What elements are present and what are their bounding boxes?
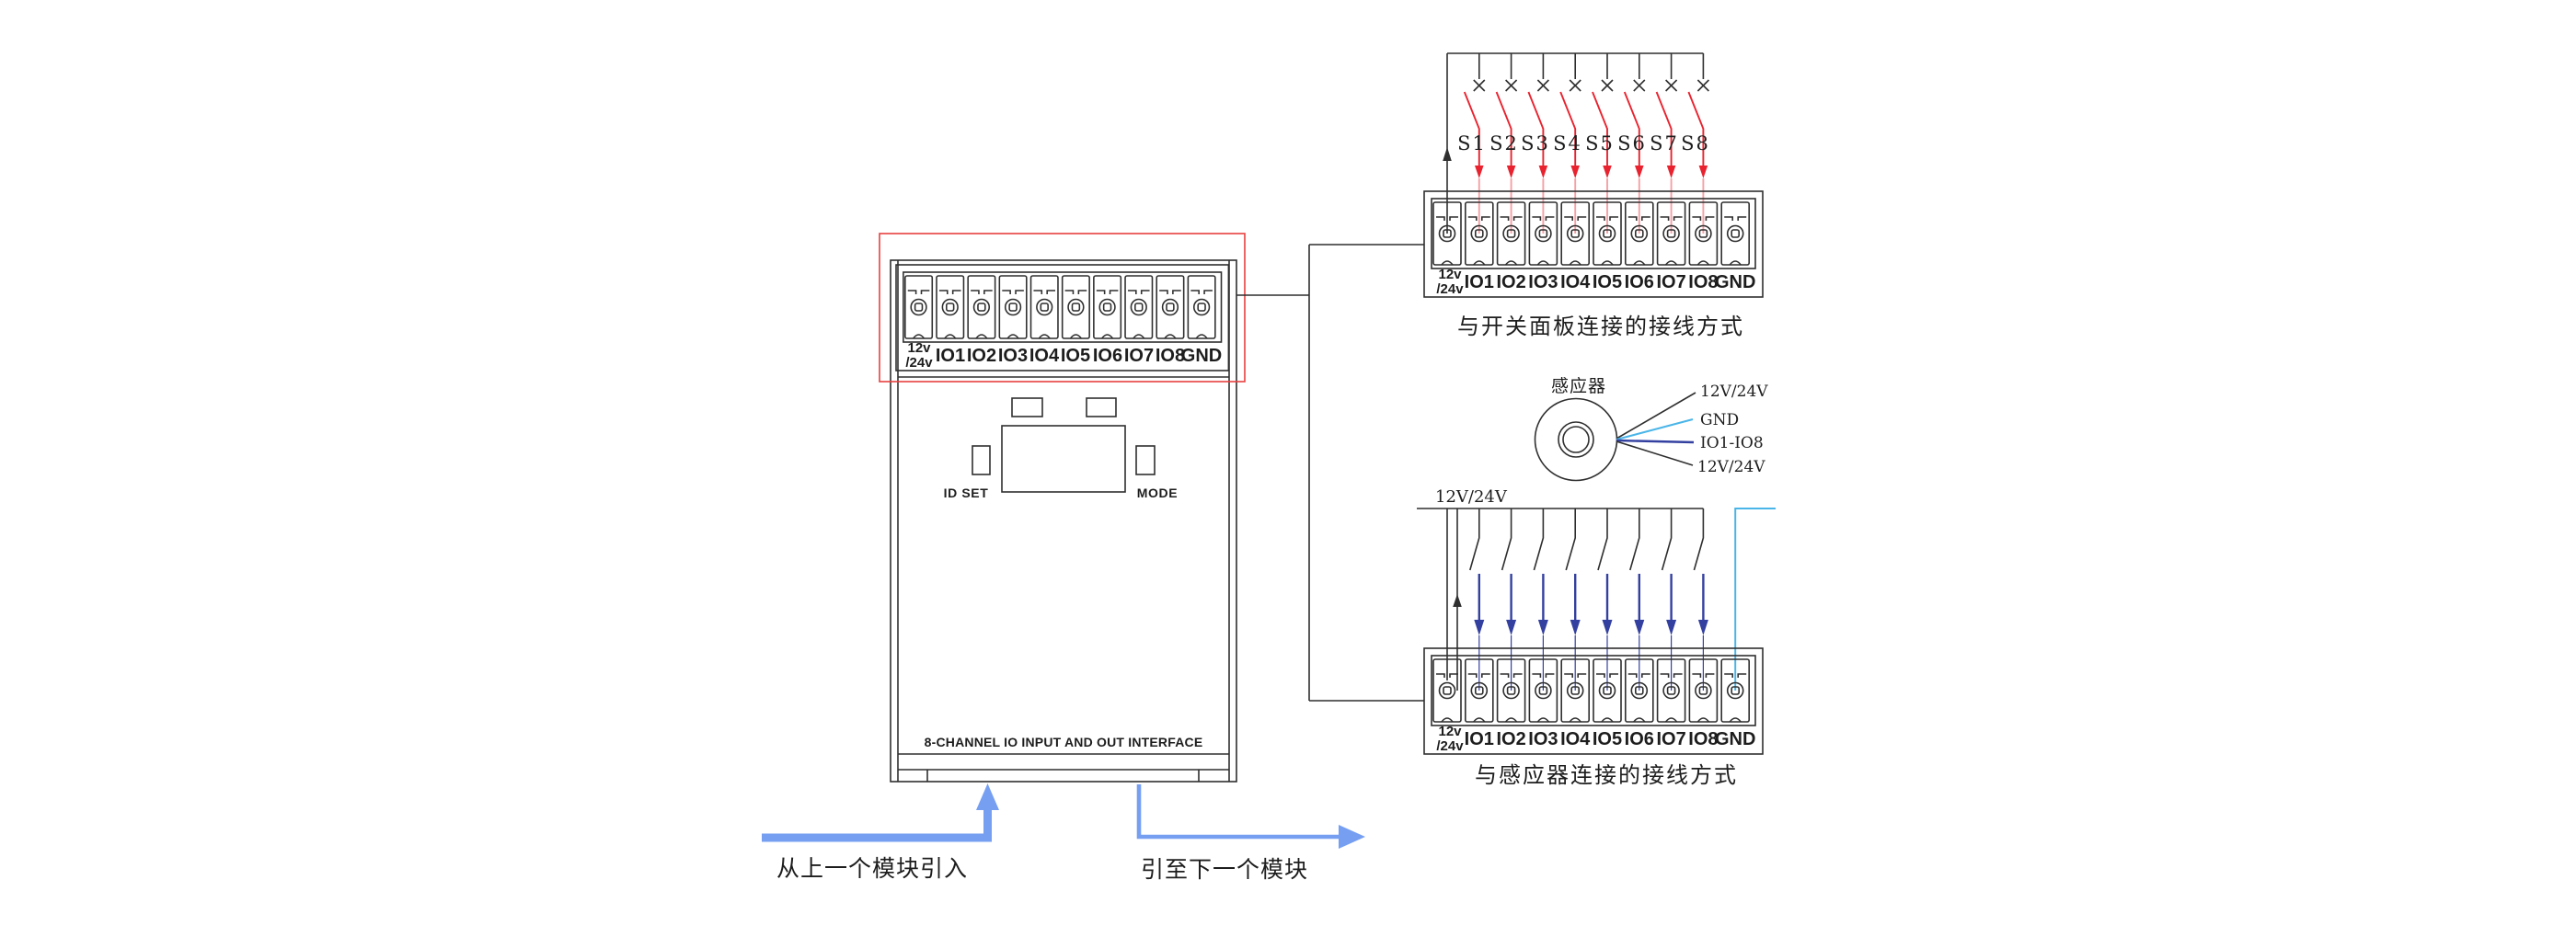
bus-voltage-label: 12V/24V xyxy=(1435,487,1508,507)
io-label: IO1 xyxy=(1465,272,1494,292)
switch-label: S5 xyxy=(1585,132,1615,154)
power-label: /24v xyxy=(1436,281,1464,297)
io-label: IO6 xyxy=(1625,272,1654,292)
power-label: /24v xyxy=(905,355,933,371)
switch-label: S1 xyxy=(1457,132,1487,154)
sensor-pin-label: 12V/24V xyxy=(1697,458,1765,476)
outgoing-arrow-label: 引至下一个模块 xyxy=(1141,856,1308,883)
io-label: IO1 xyxy=(1465,729,1494,749)
io-label: IO5 xyxy=(1061,346,1090,366)
sensor-pin-label: 12V/24V xyxy=(1700,383,1768,401)
switch-label: S7 xyxy=(1650,132,1679,154)
io-label: IO6 xyxy=(1093,346,1122,366)
io-label: IO8 xyxy=(1688,729,1718,749)
sensor-diagram-caption: 与感应器连接的接线方式 xyxy=(1475,762,1738,788)
incoming-arrow-label: 从上一个模块引入 xyxy=(776,855,968,882)
io-label: IO2 xyxy=(1496,272,1525,292)
io-label: IO7 xyxy=(1656,729,1685,749)
device-title: 8-CHANNEL IO INPUT AND OUT INTERFACE xyxy=(925,735,1203,749)
switch-label: S3 xyxy=(1521,132,1550,154)
io-label: IO8 xyxy=(1688,272,1718,292)
gnd-label: GND xyxy=(1181,346,1222,366)
io-label: IO3 xyxy=(998,346,1028,366)
power-label: 12v xyxy=(1438,724,1462,739)
io-label: IO4 xyxy=(1560,729,1591,749)
mode-label: MODE xyxy=(1137,486,1178,500)
io-label: IO5 xyxy=(1593,272,1622,292)
power-label: 12v xyxy=(1438,267,1462,282)
power-label: 12v xyxy=(907,340,931,356)
switch-label: S8 xyxy=(1681,132,1710,154)
sensor-label: 感应器 xyxy=(1551,376,1606,396)
gnd-label: GND xyxy=(1715,729,1755,749)
sensor-pin-label: GND xyxy=(1700,411,1739,429)
power-label: /24v xyxy=(1436,738,1464,754)
switch-label: S2 xyxy=(1489,132,1519,154)
io-label: IO2 xyxy=(1496,729,1525,749)
io-label: IO5 xyxy=(1593,729,1622,749)
io-label: IO2 xyxy=(967,346,996,366)
io-label: IO3 xyxy=(1528,272,1558,292)
background xyxy=(0,0,2576,937)
io-label: IO6 xyxy=(1625,729,1654,749)
switch-diagram-caption: 与开关面板连接的接线方式 xyxy=(1457,314,1744,339)
switch-label: S4 xyxy=(1553,132,1582,154)
wiring-diagram-page: 12v /24v IO1 IO2 IO3 IO4 IO5 IO6 IO7 IO8… xyxy=(0,0,2576,937)
wiring-diagram: 12v /24v IO1 IO2 IO3 IO4 IO5 IO6 IO7 IO8… xyxy=(0,0,2576,937)
gnd-label: GND xyxy=(1715,272,1755,292)
io-label: IO7 xyxy=(1656,272,1685,292)
io-label: IO3 xyxy=(1528,729,1558,749)
io-label: IO7 xyxy=(1124,346,1154,366)
sensor-pin-label: IO1-IO8 xyxy=(1700,434,1764,452)
io-label: IO1 xyxy=(936,346,965,366)
switch-label: S6 xyxy=(1617,132,1647,154)
io-label: IO4 xyxy=(1029,346,1060,366)
io-label: IO4 xyxy=(1560,272,1591,292)
id-set-label: ID SET xyxy=(944,486,989,500)
